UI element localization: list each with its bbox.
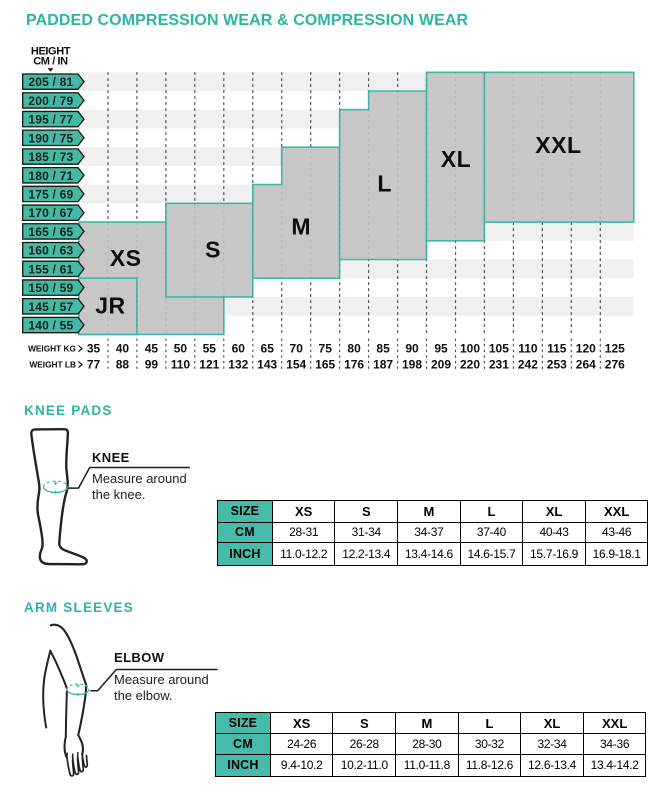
svg-text:242: 242 xyxy=(518,358,538,372)
svg-text:160 / 63: 160 / 63 xyxy=(28,244,73,258)
svg-text:99: 99 xyxy=(145,358,159,372)
svg-text:85: 85 xyxy=(376,342,390,356)
svg-text:WEIGHT KG: WEIGHT KG xyxy=(28,344,76,354)
svg-text:110: 110 xyxy=(171,358,191,372)
svg-text:50: 50 xyxy=(174,342,188,356)
svg-text:JR: JR xyxy=(95,293,125,319)
svg-text:190 / 75: 190 / 75 xyxy=(28,131,73,145)
svg-text:55: 55 xyxy=(203,342,217,356)
svg-text:165: 165 xyxy=(315,358,335,372)
svg-text:90: 90 xyxy=(405,342,419,356)
svg-text:L: L xyxy=(377,171,392,197)
svg-text:276: 276 xyxy=(605,358,625,372)
svg-text:154: 154 xyxy=(286,358,306,372)
svg-text:80: 80 xyxy=(347,342,361,356)
svg-text:S: S xyxy=(205,237,221,263)
svg-text:115: 115 xyxy=(547,342,567,356)
svg-text:195 / 77: 195 / 77 xyxy=(28,113,73,127)
svg-text:185 / 73: 185 / 73 xyxy=(28,150,73,164)
svg-text:175 / 69: 175 / 69 xyxy=(28,187,73,201)
svg-text:121: 121 xyxy=(199,358,219,372)
svg-text:150 / 59: 150 / 59 xyxy=(28,281,73,295)
svg-text:40: 40 xyxy=(116,342,130,356)
svg-text:145 / 57: 145 / 57 xyxy=(28,300,73,314)
svg-text:176: 176 xyxy=(344,358,364,372)
svg-text:XS: XS xyxy=(110,245,142,271)
svg-text:200 / 79: 200 / 79 xyxy=(28,94,73,108)
svg-text:88: 88 xyxy=(116,358,130,372)
svg-text:XL: XL xyxy=(441,146,471,172)
svg-text:XXL: XXL xyxy=(535,132,581,158)
svg-text:35: 35 xyxy=(87,342,101,356)
svg-text:143: 143 xyxy=(257,358,277,372)
svg-text:95: 95 xyxy=(434,342,448,356)
svg-text:WEIGHT LB: WEIGHT LB xyxy=(29,360,76,370)
svg-text:CM / IN: CM / IN xyxy=(33,56,68,68)
svg-text:205 / 81: 205 / 81 xyxy=(28,75,73,89)
svg-text:M: M xyxy=(291,214,311,240)
svg-text:77: 77 xyxy=(87,358,101,372)
svg-text:198: 198 xyxy=(402,358,422,372)
svg-text:170 / 67: 170 / 67 xyxy=(28,206,73,220)
svg-text:45: 45 xyxy=(145,342,159,356)
svg-text:253: 253 xyxy=(547,358,567,372)
svg-text:187: 187 xyxy=(373,358,393,372)
svg-text:264: 264 xyxy=(576,358,596,372)
svg-text:120: 120 xyxy=(576,342,596,356)
svg-text:70: 70 xyxy=(290,342,304,356)
svg-text:60: 60 xyxy=(232,342,246,356)
svg-text:65: 65 xyxy=(261,342,275,356)
svg-text:220: 220 xyxy=(460,358,480,372)
svg-text:110: 110 xyxy=(518,342,538,356)
svg-text:100: 100 xyxy=(460,342,480,356)
svg-text:155 / 61: 155 / 61 xyxy=(28,262,73,276)
svg-text:132: 132 xyxy=(228,358,248,372)
svg-text:125: 125 xyxy=(605,342,625,356)
svg-text:209: 209 xyxy=(431,358,451,372)
svg-text:165 / 65: 165 / 65 xyxy=(28,225,73,239)
svg-text:180 / 71: 180 / 71 xyxy=(28,169,73,183)
svg-text:75: 75 xyxy=(319,342,333,356)
svg-text:231: 231 xyxy=(489,358,509,372)
svg-text:105: 105 xyxy=(489,342,509,356)
svg-text:140 / 55: 140 / 55 xyxy=(28,319,73,333)
